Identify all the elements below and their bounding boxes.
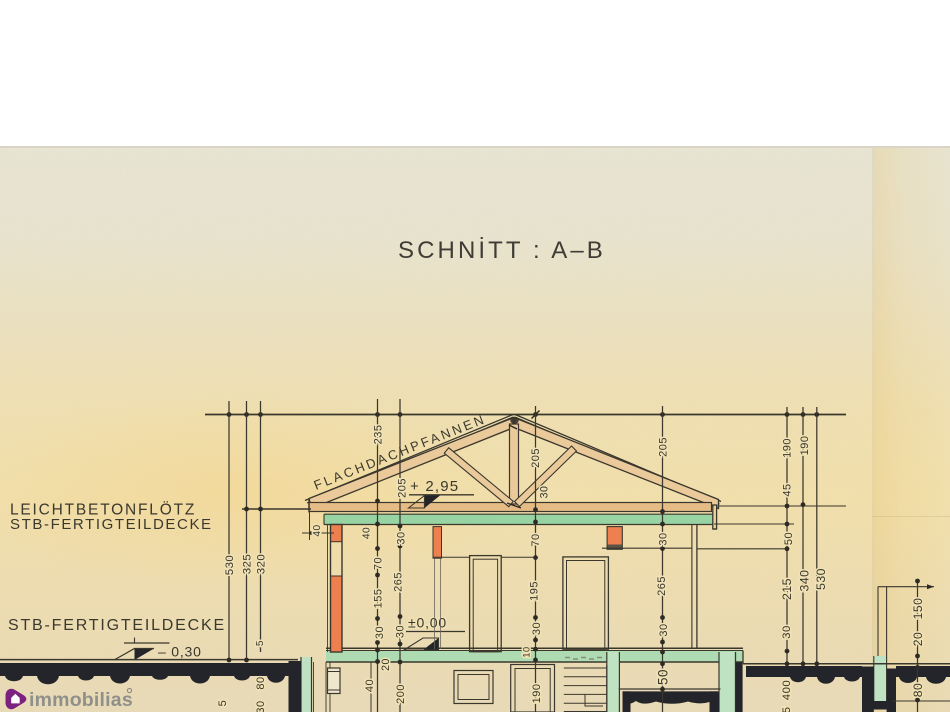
svg-text:205: 205 — [657, 437, 669, 457]
svg-text:400: 400 — [781, 680, 793, 701]
svg-text:215: 215 — [780, 578, 794, 600]
svg-text:320: 320 — [256, 554, 268, 575]
svg-text:530: 530 — [224, 555, 236, 576]
svg-text:40: 40 — [362, 527, 373, 539]
svg-text:205: 205 — [530, 448, 542, 468]
svg-text:340: 340 — [797, 569, 811, 591]
svg-text:50: 50 — [655, 669, 670, 685]
svg-text:150: 150 — [911, 598, 925, 620]
svg-text:+ 2,95: + 2,95 — [410, 478, 459, 495]
svg-text:30: 30 — [394, 625, 406, 638]
svg-text:530: 530 — [814, 568, 828, 590]
svg-text:205: 205 — [396, 478, 408, 498]
svg-text:20: 20 — [911, 632, 925, 647]
svg-text:40: 40 — [364, 679, 376, 692]
svg-text:STB-FERTIGTEILDECKE: STB-FERTIGTEILDECKE — [8, 617, 226, 634]
svg-text:10: 10 — [521, 646, 531, 657]
svg-text:30: 30 — [781, 625, 793, 639]
svg-text:190: 190 — [799, 436, 811, 456]
svg-text:30: 30 — [255, 700, 267, 712]
svg-text:325: 325 — [242, 554, 254, 575]
svg-text:5: 5 — [217, 700, 229, 707]
svg-text:265: 265 — [656, 576, 668, 596]
svg-text:30: 30 — [538, 486, 550, 499]
svg-text:190: 190 — [781, 438, 793, 458]
svg-text:70: 70 — [372, 557, 384, 570]
svg-text:20: 20 — [380, 658, 392, 671]
svg-text:30: 30 — [658, 623, 670, 636]
svg-text:STB-FERTIGTEILDECKE: STB-FERTIGTEILDECKE — [10, 516, 213, 533]
svg-text:immobilias: immobilias — [29, 689, 133, 711]
svg-text:80: 80 — [255, 676, 267, 689]
svg-text:SCHNİTT : A–B: SCHNİTT : A–B — [398, 237, 606, 264]
svg-text:155: 155 — [372, 589, 384, 609]
svg-text:195: 195 — [528, 581, 540, 601]
svg-text:5: 5 — [255, 640, 266, 646]
svg-text:– 0,30: – 0,30 — [158, 644, 202, 660]
svg-text:50: 50 — [783, 532, 795, 545]
svg-text:5: 5 — [781, 707, 793, 712]
svg-text:265: 265 — [392, 572, 404, 592]
svg-text:30: 30 — [657, 532, 669, 545]
svg-text:30: 30 — [531, 622, 543, 635]
svg-text:80: 80 — [911, 683, 925, 698]
svg-text:70: 70 — [530, 533, 542, 546]
svg-text:40: 40 — [312, 524, 323, 536]
svg-text:±0,00: ±0,00 — [408, 615, 447, 631]
svg-text:235: 235 — [372, 425, 384, 445]
svg-text:190: 190 — [531, 684, 543, 704]
svg-text:200: 200 — [395, 684, 407, 704]
svg-text:30: 30 — [374, 626, 386, 639]
svg-text:45: 45 — [781, 483, 793, 496]
svg-text:30: 30 — [395, 531, 407, 544]
